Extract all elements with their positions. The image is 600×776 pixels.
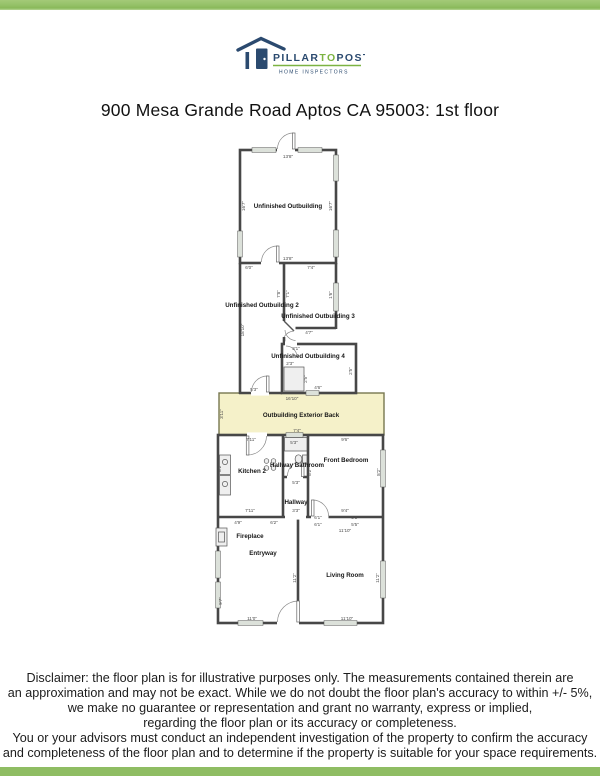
dimension-label: 5'3" <box>290 440 298 445</box>
disclaimer-line: regarding the floor plan or its accuracy… <box>0 716 600 731</box>
dimension-label: 3'1" <box>292 346 300 351</box>
room-label: Front Bedroom <box>324 457 369 464</box>
dimension-label: 11'10" <box>341 616 354 621</box>
dimension-label: 11'0" <box>247 616 257 621</box>
disclaimer: Disclaimer: the floor plan is for illust… <box>0 671 600 761</box>
dimension-label: 16'10" <box>286 396 299 401</box>
dimension-label: 13'8" <box>283 256 294 261</box>
bottom-accent-bar <box>0 767 600 776</box>
fireplace-icon <box>216 528 227 546</box>
dimension-label: 7'1" <box>285 290 290 298</box>
dimension-label: 11'10" <box>339 528 352 533</box>
room-label: Entryway <box>249 550 277 557</box>
room-label: Living Room <box>326 572 364 579</box>
dimension-label: 3'3" <box>292 508 300 513</box>
shower-pad <box>284 367 304 391</box>
room-label: Kitchen 2 <box>238 468 266 475</box>
room-label: Hallway Bathroom <box>270 462 324 469</box>
page-title: 900 Mesa Grande Road Aptos CA 95003: 1st… <box>0 100 600 121</box>
svg-text:PILLARTOPOST: PILLARTOPOST <box>273 52 365 64</box>
dimension-label: 16'7" <box>241 201 246 212</box>
dimension-label: 7'4" <box>307 265 315 270</box>
dimension-label: 8'2" <box>217 464 222 472</box>
room-label: Unfinished Outbuilding 2 <box>225 302 299 309</box>
dimension-label: 11'2" <box>375 573 380 583</box>
dimension-label: 8'2" <box>376 468 381 476</box>
dimension-label: 2'5" <box>303 375 308 383</box>
dimension-label: 11'2" <box>292 573 297 583</box>
sink-counter-icon <box>220 455 231 495</box>
dimension-label: 16'7" <box>328 201 333 212</box>
dimension-label: 9'6" <box>341 437 349 442</box>
dimension-label: 9'4" <box>341 508 349 513</box>
dimension-label: 13'8" <box>283 154 294 159</box>
dimension-label: 8'2" <box>307 468 312 476</box>
dimension-label: 2'3" <box>286 361 294 366</box>
dimension-label: 5'3" <box>292 480 300 485</box>
brand-part-pillar: PILLAR <box>273 52 319 64</box>
dimension-label: 5'3" <box>250 387 258 392</box>
dimension-label: 4'9" <box>234 520 242 525</box>
dimension-label: 6'1" <box>314 522 322 527</box>
floor-plan: Unfinished OutbuildingUnfinished Outbuil… <box>0 128 600 663</box>
dimension-label: 18'10" <box>240 323 245 336</box>
disclaimer-line: Disclaimer: the floor plan is for illust… <box>0 671 600 686</box>
dimension-label: 9'7" <box>218 597 223 605</box>
dimension-label: 6'0" <box>245 265 253 270</box>
dimension-label: 6'1" <box>314 515 322 520</box>
brand-tagline: HOME INSPECTORS <box>279 70 349 76</box>
dimension-label: 5'5" <box>351 515 359 520</box>
room-label: Unfinished Outbuilding 3 <box>281 313 355 320</box>
room-label: Unfinished Outbuilding 4 <box>271 353 345 360</box>
dimension-label: 5'5" <box>351 522 359 527</box>
room-label: Outbuilding Exterior Back <box>263 412 340 419</box>
dimension-label: 4'7" <box>305 330 313 335</box>
dimension-label: 7'11" <box>246 437 256 442</box>
top-accent-bar <box>0 0 600 10</box>
disclaimer-line: You or your advisors must conduct an ind… <box>0 731 600 746</box>
pillar-to-post-logo: PILLARTOPOST HOME INSPECTORS <box>235 34 365 80</box>
dimension-label: 4'6" <box>314 385 322 390</box>
dimension-label: 2'5" <box>348 367 353 375</box>
dimension-label: 1'6" <box>328 291 333 299</box>
brand-logo: PILLARTOPOST HOME INSPECTORS <box>0 34 600 80</box>
dimension-label: 3'11" <box>219 409 224 419</box>
disclaimer-line: an approximation and may not be exact. W… <box>0 686 600 701</box>
disclaimer-line: we make no guarantee or representation a… <box>0 701 600 716</box>
dimension-label: 6'2" <box>270 520 278 525</box>
dimension-label: 7'8" <box>276 290 281 298</box>
brand-part-post: POST <box>337 52 365 64</box>
dimension-label: 7'11" <box>245 508 255 513</box>
dimension-label: 7'4" <box>293 428 301 433</box>
room-label: Hallway <box>284 499 308 506</box>
room-label: Unfinished Outbuilding <box>254 203 323 210</box>
disclaimer-line: and completeness of the floor plan and t… <box>0 746 600 761</box>
brand-part-to: TO <box>319 52 336 64</box>
room-label: Fireplace <box>236 533 264 540</box>
